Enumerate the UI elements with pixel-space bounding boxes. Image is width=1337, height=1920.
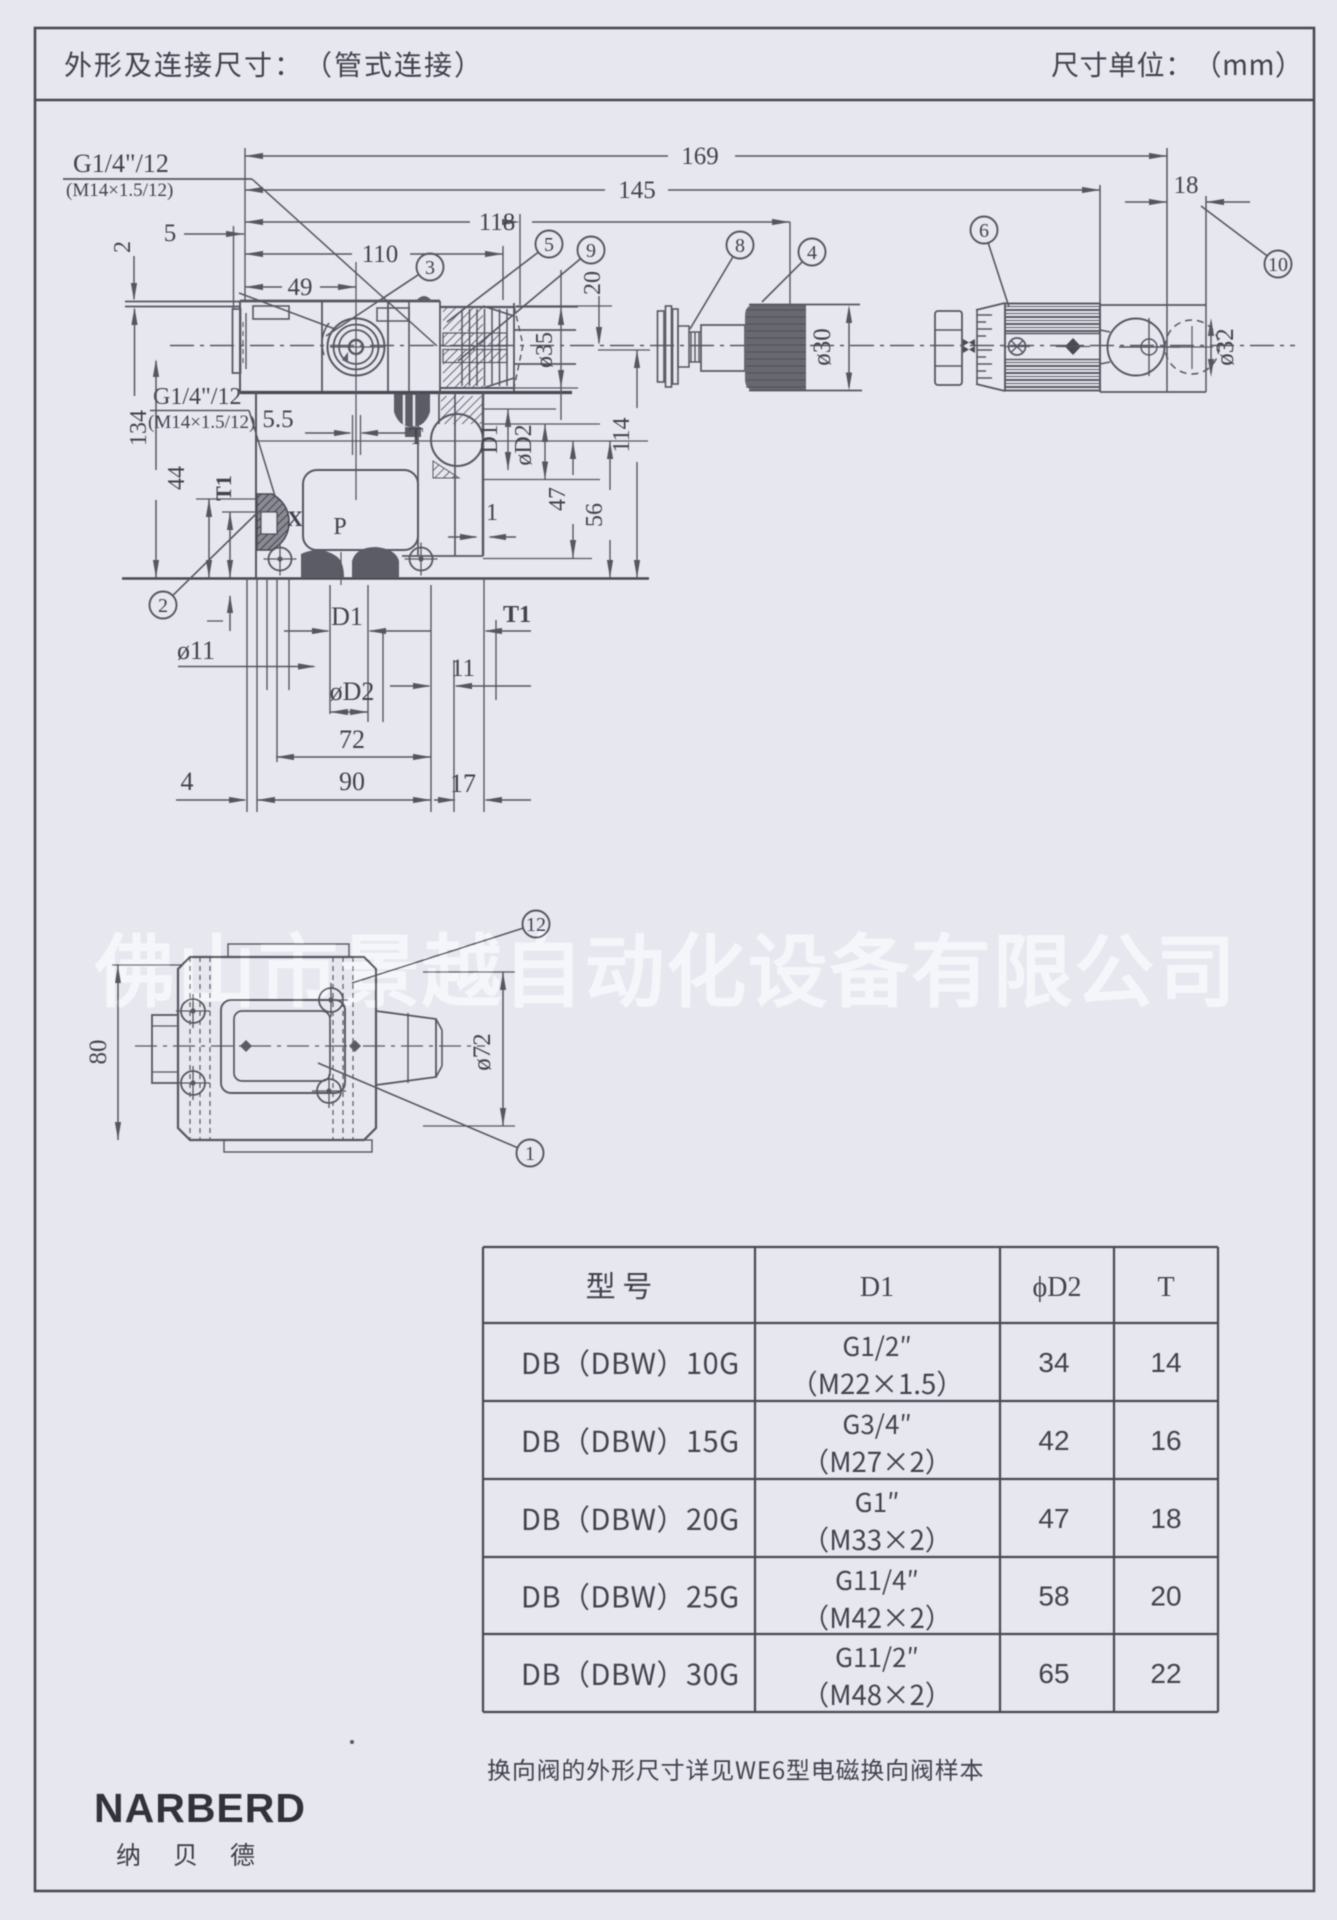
svg-text:11: 11 bbox=[451, 655, 475, 682]
svg-text:110: 110 bbox=[362, 241, 399, 268]
svg-text:T: T bbox=[1157, 1272, 1174, 1303]
svg-text:42: 42 bbox=[1038, 1425, 1069, 1456]
svg-text:12: 12 bbox=[526, 914, 546, 936]
svg-text:ø72: ø72 bbox=[469, 1033, 496, 1071]
svg-text:NARBERD: NARBERD bbox=[94, 1785, 306, 1831]
svg-text:ø32: ø32 bbox=[1212, 328, 1239, 366]
svg-text:72: 72 bbox=[339, 725, 365, 754]
svg-text:2: 2 bbox=[110, 241, 136, 253]
svg-text:10: 10 bbox=[1268, 254, 1288, 276]
svg-text:17: 17 bbox=[450, 769, 476, 798]
svg-text:4: 4 bbox=[181, 767, 194, 796]
svg-text:øD2: øD2 bbox=[511, 424, 537, 465]
svg-text:1: 1 bbox=[525, 1143, 535, 1165]
svg-text:P: P bbox=[333, 514, 346, 540]
svg-text:44: 44 bbox=[164, 466, 190, 490]
svg-text:90: 90 bbox=[339, 767, 365, 796]
svg-text:22: 22 bbox=[1150, 1658, 1181, 1689]
svg-text:G1/4"/12: G1/4"/12 bbox=[73, 149, 169, 178]
svg-text:8: 8 bbox=[735, 235, 745, 257]
svg-text:18: 18 bbox=[1150, 1503, 1181, 1534]
svg-text:20: 20 bbox=[1150, 1581, 1181, 1612]
svg-text:80: 80 bbox=[85, 1040, 112, 1065]
svg-text:65: 65 bbox=[1038, 1658, 1069, 1689]
svg-text:D1: D1 bbox=[860, 1272, 894, 1303]
svg-text:D1: D1 bbox=[331, 602, 363, 631]
svg-text:øD2: øD2 bbox=[330, 677, 375, 706]
svg-text:6: 6 bbox=[979, 220, 989, 242]
svg-text:16: 16 bbox=[1150, 1425, 1181, 1456]
svg-text:14: 14 bbox=[1150, 1347, 1181, 1378]
svg-text:ø30: ø30 bbox=[809, 328, 836, 366]
svg-text:T1: T1 bbox=[503, 602, 531, 628]
svg-text:34: 34 bbox=[1038, 1347, 1069, 1378]
svg-text:ϕD2: ϕD2 bbox=[1033, 1272, 1082, 1303]
svg-text:118: 118 bbox=[479, 209, 516, 236]
svg-text:5: 5 bbox=[544, 234, 554, 256]
svg-text:3: 3 bbox=[425, 257, 435, 279]
svg-text:G1/4"/12: G1/4"/12 bbox=[153, 384, 241, 410]
svg-text:5: 5 bbox=[164, 220, 177, 247]
svg-text:X: X bbox=[287, 506, 303, 531]
svg-text:ø35: ø35 bbox=[532, 332, 558, 368]
svg-text:1: 1 bbox=[486, 500, 498, 526]
svg-text:49: 49 bbox=[288, 274, 313, 301]
svg-text:47: 47 bbox=[545, 487, 571, 511]
svg-text:2: 2 bbox=[158, 595, 168, 617]
svg-text:D1: D1 bbox=[477, 424, 503, 453]
svg-text:18: 18 bbox=[1174, 172, 1199, 199]
svg-text:4: 4 bbox=[807, 242, 817, 264]
svg-text:T1: T1 bbox=[211, 475, 236, 501]
svg-text:47: 47 bbox=[1038, 1503, 1069, 1534]
svg-text:56: 56 bbox=[582, 503, 608, 527]
svg-text:(M14×1.5/12): (M14×1.5/12) bbox=[148, 412, 255, 433]
svg-text:9: 9 bbox=[586, 240, 596, 262]
svg-text:114: 114 bbox=[609, 417, 635, 452]
svg-text:20: 20 bbox=[580, 271, 606, 295]
svg-text:145: 145 bbox=[618, 177, 656, 204]
svg-text:58: 58 bbox=[1038, 1581, 1069, 1612]
svg-text:134: 134 bbox=[126, 410, 152, 446]
svg-text:169: 169 bbox=[681, 143, 719, 170]
svg-text:T: T bbox=[409, 424, 424, 450]
svg-text:5.5: 5.5 bbox=[262, 406, 293, 433]
svg-text:(M14×1.5/12): (M14×1.5/12) bbox=[66, 180, 173, 201]
svg-text:ø11: ø11 bbox=[177, 636, 215, 665]
